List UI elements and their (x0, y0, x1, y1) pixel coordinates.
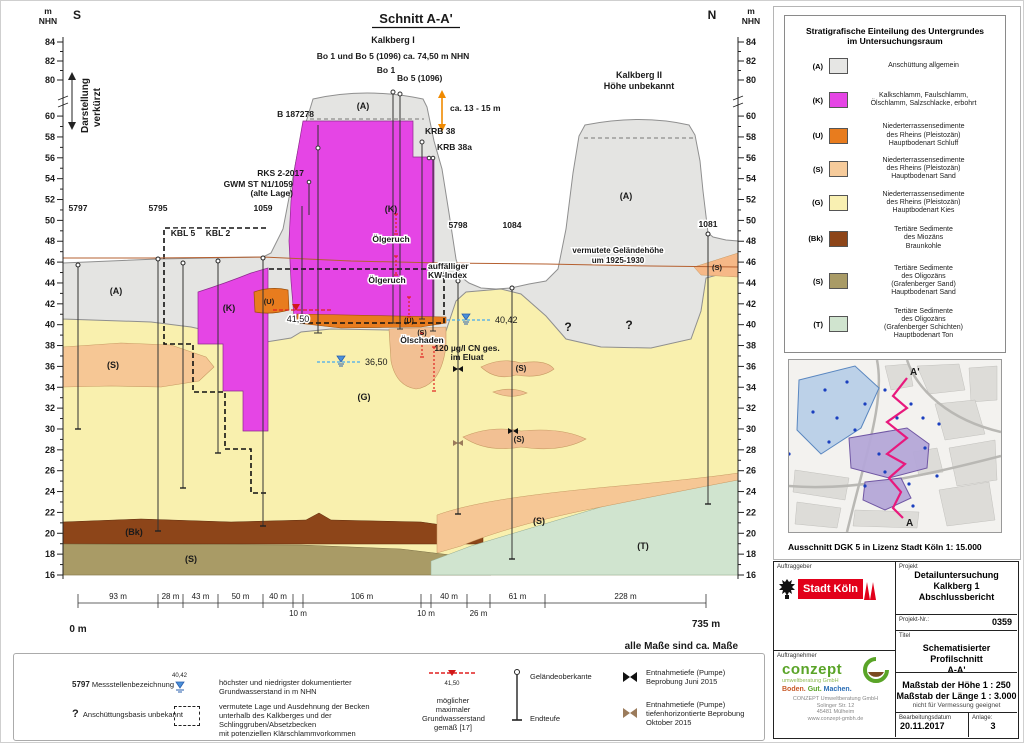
section-title: Schnitt A-A' (379, 11, 452, 26)
svg-text:ca. 13 - 15 m: ca. 13 - 15 m (450, 103, 501, 113)
axis-label-left: 26 (45, 466, 55, 476)
axis-label-left: 56 (45, 153, 55, 163)
auftraggeber-label: Auftraggeber (774, 562, 895, 570)
svg-text:verkürzt: verkürzt (92, 87, 103, 127)
svg-text:Darstellung: Darstellung (80, 78, 91, 133)
axis-label-right: 40 (746, 320, 756, 330)
axis-unit-left-m: m (44, 6, 52, 16)
axis-label-left: 28 (45, 445, 55, 455)
legend-pump2-text: Entnahmetiefe (Pumpe) (646, 700, 744, 709)
measures-note: alle Maße sind ca. Maße (625, 641, 739, 652)
axis-label-left: 18 (45, 549, 55, 559)
legend-item: (S)Tertiäre Sedimentedes Oligozäns(Grafe… (791, 265, 999, 298)
axis-label-left: 82 (45, 56, 55, 66)
axis-label-left: 20 (45, 528, 55, 538)
pump-october-icon (622, 708, 638, 718)
axis-label-left: 54 (45, 174, 55, 184)
axis-label-right: 54 (746, 174, 756, 184)
legend-item-swatch (829, 92, 848, 108)
legend-item-code: (U) (791, 131, 823, 140)
date-value: 20.11.2017 (896, 721, 968, 731)
legend-title-2: im Untersuchungsraum (847, 36, 942, 46)
axis-label-left: 36 (45, 361, 55, 371)
axis-label-right: 60 (746, 111, 756, 121)
stadt-koeln-eagle-icon (778, 578, 796, 600)
anlage-label: Anlage: (969, 713, 1017, 721)
project-name: Detailuntersuchung Kalkberg 1 Abschlussb… (896, 570, 1017, 603)
axis-label-left: 80 (45, 75, 55, 85)
axis-label-left: 22 (45, 507, 55, 517)
legend-maxgw-text: möglicher maximaler (422, 696, 484, 714)
legend-item: (G)Niederterrassensedimentedes Rheins (P… (791, 191, 999, 216)
svg-text:40,42: 40,42 (495, 315, 518, 325)
station-gok-marker (181, 261, 185, 265)
svg-text:(U): (U) (264, 297, 275, 306)
svg-text:(S): (S) (533, 516, 545, 526)
dim-label: 50 m (232, 592, 250, 601)
svg-text:(S): (S) (516, 364, 527, 373)
svg-text:(K): (K) (385, 204, 398, 214)
legend-pump1-text: Entnahmetiefe (Pumpe) (646, 668, 725, 677)
axis-label-right: 34 (746, 382, 756, 392)
body-kalkschlamm-main (289, 121, 434, 317)
legend-item-swatch (829, 195, 848, 211)
legend-item-text: Anschüttung allgemein (848, 62, 999, 70)
axis-unit-right-nhn: NHN (742, 16, 760, 26)
zero-m-label: 0 m (69, 624, 86, 635)
legend-item-text: Niederterrassensedimentedes Rheins (Plei… (848, 123, 999, 148)
dimension-row: 93 m28 m43 m50 m40 m10 m106 m10 m40 m26 … (78, 592, 706, 618)
svg-text:RKS 2-2017: RKS 2-2017 (257, 168, 304, 178)
station-label: KBL 2 (206, 228, 231, 238)
axis-label-left: 84 (45, 37, 55, 47)
svg-text:36,50: 36,50 (365, 357, 388, 367)
stadt-koeln-logo: Stadt Köln (778, 578, 891, 600)
axis-label-left: 50 (45, 215, 55, 225)
axis-label-left: 16 (45, 570, 55, 580)
axis-label-right: 26 (746, 466, 756, 476)
station-gok-marker (510, 286, 514, 290)
legend-gw-text: höchster und niedrigster dokumentierter (219, 678, 352, 687)
legend-item-swatch (829, 161, 848, 177)
legend-item-code: (A) (791, 62, 823, 71)
svg-text:(alte Lage): (alte Lage) (250, 188, 293, 198)
axis-label-right: 16 (746, 570, 756, 580)
axis-unit-left-nhn: NHN (39, 16, 57, 26)
axis-label-left: 38 (45, 341, 55, 351)
dim-label: 43 m (192, 592, 210, 601)
legend-item-code: (S) (791, 165, 823, 174)
svg-text:(S): (S) (107, 360, 119, 370)
symbol-legend: 5797 Messstellenbezeichnung ? Anschüttun… (13, 653, 765, 741)
legend-item-text: Kalkschlamm, Faulschlamm,Ölschlamm, Salz… (848, 92, 999, 108)
axis-label-right: 46 (746, 257, 756, 267)
legend-item-code: (S) (791, 277, 823, 286)
kalkberg2-label: Kalkberg II (616, 70, 662, 80)
axis-label-left: 48 (45, 236, 55, 246)
axis-label-left: 58 (45, 132, 55, 142)
direction-south: S (73, 8, 81, 22)
max-groundwater-icon (429, 668, 475, 678)
axis-label-right: 84 (746, 37, 756, 47)
legend-item-code: (K) (791, 96, 823, 105)
axis-label-right: 42 (746, 299, 756, 309)
axis-label-left: 34 (45, 382, 55, 392)
axis-label-left: 30 (45, 424, 55, 434)
scale-note: nicht für Vermessung geeignet (896, 702, 1017, 709)
axis-label-left: 44 (45, 278, 55, 288)
legend-item-swatch (829, 128, 848, 144)
legend-item: (S)Niederterrassensedimentedes Rheins (P… (791, 157, 999, 182)
svg-text:41,50: 41,50 (287, 314, 310, 324)
legend-item: (Bk)Tertiäre Sedimentedes MiozänsBraunko… (791, 226, 999, 251)
axis-label-right: 38 (746, 341, 756, 351)
svg-text:(Bk): (Bk) (125, 527, 143, 537)
station-gok-marker (76, 263, 80, 267)
svg-text:Ölgeruch: Ölgeruch (372, 234, 409, 244)
dim-label: 40 m (440, 592, 458, 601)
dim-label: 10 m (417, 609, 435, 618)
legend-item: (T)Tertiäre Sedimentedes Oligozäns(Grafe… (791, 308, 999, 341)
cross-section-drawing: vermutete Geländehöhe um 1925-1930 16161… (1, 1, 773, 653)
dim-label: 26 m (470, 609, 488, 618)
axis-label-right: 24 (746, 487, 756, 497)
direction-north: N (708, 8, 717, 22)
legend-becken-text: vermutete Lage und Ausdehnung der Becken (219, 702, 370, 711)
scale-length: Maßstab der Länge 1 : 3.000 (896, 691, 1017, 702)
conzept-logo: conzept umweltberatung GmbH Boden. Gut. … (782, 661, 889, 722)
svg-text:(U): (U) (404, 318, 414, 325)
legend-station-code: 5797 (72, 680, 90, 689)
location-map: A' A Ausschnitt DGK 5 in Lizenz Stadt Kö… (788, 359, 1002, 552)
svg-text:(S): (S) (514, 435, 525, 444)
historic-terrain-label2: um 1925-1930 (592, 256, 645, 265)
legend-question-mark: ? (72, 708, 79, 720)
axis-label-right: 48 (746, 236, 756, 246)
conzept-logo-icon (863, 657, 889, 683)
legend-item-text: Niederterrassensedimentedes Rheins (Plei… (848, 191, 999, 216)
legend-item-text: Tertiäre Sedimentedes Oligozäns(Grafenbe… (848, 308, 999, 341)
kalkberg1-label: Kalkberg I (371, 35, 415, 45)
total-m-label: 735 m (692, 619, 720, 630)
axis-label-right: 58 (746, 132, 756, 142)
sheet: vermutete Geländehöhe um 1925-1930 16161… (0, 0, 1024, 743)
axis-label-right: 82 (746, 56, 756, 66)
svg-text:(K): (K) (223, 303, 236, 313)
kw-index-label: auffälliger KW-Index (428, 261, 469, 280)
axis-label-right: 80 (746, 75, 756, 85)
historic-terrain-label: vermutete Geländehöhe (572, 246, 664, 255)
legend-item-swatch (829, 231, 848, 247)
map-label-a-start: A (906, 518, 913, 529)
svg-text:(A): (A) (620, 191, 633, 201)
axis-label-right: 30 (746, 424, 756, 434)
projekt-label: Projekt (896, 562, 1017, 570)
dim-label: 228 m (614, 592, 637, 601)
legend-question-text: Anschüttungsbasis unbekannt (83, 710, 183, 719)
projekt-nr-label: Projekt-Nr.: (896, 615, 929, 623)
borehole-depth-icon (511, 668, 523, 726)
svg-text:KW-Index: KW-Index (428, 270, 467, 280)
station-label: 1059 (254, 203, 273, 213)
svg-text:(S): (S) (712, 263, 723, 272)
dim-label: 28 m (162, 592, 180, 601)
axis-label-left: 24 (45, 487, 55, 497)
pump-june-icon (622, 672, 638, 682)
legend-item-swatch (829, 316, 848, 332)
station-gok-marker (156, 257, 160, 261)
svg-text:(A): (A) (110, 286, 123, 296)
axis-label-right: 32 (746, 403, 756, 413)
axis-label-left: 40 (45, 320, 55, 330)
legend-item-text: Tertiäre Sedimentedes MiozänsBraunkohle (848, 226, 999, 251)
axis-label-right: 18 (746, 549, 756, 559)
legend-gok-label: Geländeoberkante (530, 672, 592, 681)
legend-item-swatch (829, 58, 848, 74)
axis-label-left: 46 (45, 257, 55, 267)
conzept-address: CONZEPT Umweltberatung GmbH Solinger Str… (782, 696, 889, 722)
legend-item: (U)Niederterrassensedimentedes Rheins (P… (791, 123, 999, 148)
svg-text:im Eluat: im Eluat (450, 352, 483, 362)
legend-item-swatch (829, 273, 848, 289)
svg-text:Bo 1: Bo 1 (377, 65, 396, 75)
axis-label-left: 52 (45, 195, 55, 205)
axis-label-left: 32 (45, 403, 55, 413)
station-label: 5797 (69, 203, 88, 213)
axis-label-right: 36 (746, 361, 756, 371)
svg-text:(S): (S) (417, 330, 426, 337)
legend-item-code: (Bk) (791, 234, 823, 243)
map-caption: Ausschnitt DGK 5 in Lizenz Stadt Köln 1:… (788, 542, 1002, 552)
legend-station-text: Messstellenbezeichnung (92, 680, 174, 689)
axis-label-left: 60 (45, 111, 55, 121)
axis-label-left: 42 (45, 299, 55, 309)
axis-label-right: 56 (746, 153, 756, 163)
svg-text:(A): (A) (357, 101, 370, 111)
title-block: Auftraggeber Stadt Köln Auftragnehmer (773, 561, 1019, 739)
right-panel: Stratigrafische Einteilung des Untergrun… (773, 6, 1021, 560)
axis-label-right: 28 (746, 445, 756, 455)
axis-label-right: 52 (746, 195, 756, 205)
cathedral-icon (863, 578, 877, 600)
svg-text:B 187278: B 187278 (277, 109, 314, 119)
legend-gw-symbol: 40,42 (172, 670, 187, 695)
conzept-tagline: Boden. Gut. Machen. (782, 686, 889, 693)
legend-item: (A)Anschüttung allgemein (791, 58, 999, 74)
axis-unit-right-m: m (747, 6, 755, 16)
axis-label-right: 20 (746, 528, 756, 538)
svg-text:Ölgeruch: Ölgeruch (368, 275, 405, 285)
unknown-base-1: ? (564, 320, 571, 334)
svg-text:(S): (S) (185, 554, 197, 564)
anlage-value: 3 (969, 721, 1017, 731)
axis-label-right: 50 (746, 215, 756, 225)
projekt-nr: 0359 (992, 615, 1017, 627)
legend-item-text: Tertiäre Sedimentedes Oligozäns(Grafenbe… (848, 265, 999, 298)
dim-label: 40 m (269, 592, 287, 601)
legend-item-code: (T) (791, 320, 823, 329)
unknown-base-2: ? (625, 318, 632, 332)
legend-title: Stratigrafische Einteilung des Untergrun… (806, 26, 984, 36)
bo-note-label: Bo 1 und Bo 5 (1096) ca. 74,50 m NHN (317, 51, 470, 61)
station-label: 5798 (449, 220, 468, 230)
shortened-note: Darstellung verkürzt (68, 72, 103, 133)
scale-height: Maßstab der Höhe 1 : 250 (896, 680, 1017, 691)
svg-text:(G): (G) (358, 392, 371, 402)
legend-maxgw-symbol: 41,50 (422, 668, 482, 689)
station-label: 1084 (503, 220, 522, 230)
titel-label: Titel (896, 631, 1017, 639)
map-image: A' A (788, 359, 1002, 533)
groundwater-icon (173, 681, 187, 693)
legend-endteufe-label: Endteufe (530, 714, 560, 723)
stratigraphy-legend: Stratigrafische Einteilung des Untergrun… (784, 15, 1006, 353)
stadt-koeln-wordmark: Stadt Köln (798, 579, 863, 599)
dim-label: 10 m (289, 609, 307, 618)
svg-text:KRB 38: KRB 38 (425, 126, 456, 136)
legend-item-text: Niederterrassensedimentedes Rheins (Plei… (848, 157, 999, 182)
station-gok-marker (261, 256, 265, 260)
kalkberg2-label2: Höhe unbekannt (604, 81, 675, 91)
axis-label-right: 22 (746, 507, 756, 517)
svg-text:Bo 5 (1096): Bo 5 (1096) (397, 73, 443, 83)
becken-symbol (174, 706, 200, 726)
svg-text:KRB 38a: KRB 38a (437, 142, 472, 152)
station-label: KBL 5 (171, 228, 196, 238)
legend-item: (K)Kalkschlamm, Faulschlamm,Ölschlamm, S… (791, 92, 999, 108)
map-label-a-end: A' (910, 367, 920, 378)
dim-label: 106 m (351, 592, 374, 601)
legend-item-code: (G) (791, 198, 823, 207)
dim-label: 61 m (509, 592, 527, 601)
station-label: 5795 (149, 203, 168, 213)
station-gok-marker (706, 232, 710, 236)
station-gok-marker (216, 259, 220, 263)
svg-text:(T): (T) (637, 541, 649, 551)
station-label: 1081 (699, 219, 718, 229)
axis-label-right: 44 (746, 278, 756, 288)
date-label: Bearbeitungsdatum (896, 713, 968, 721)
dim-label: 93 m (109, 592, 127, 601)
